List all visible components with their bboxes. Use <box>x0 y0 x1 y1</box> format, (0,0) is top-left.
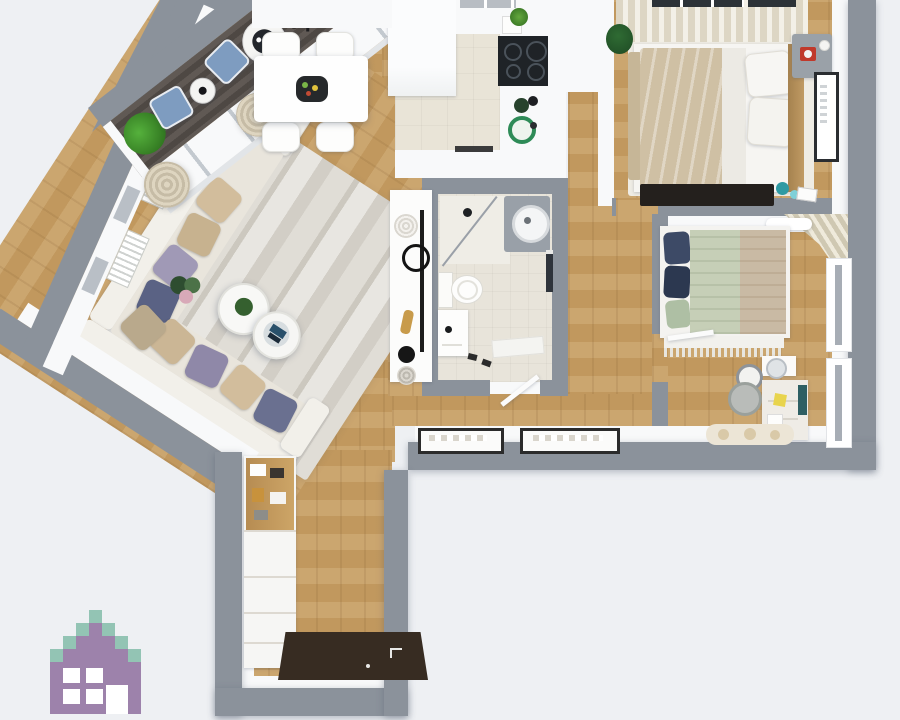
dotted-disc <box>397 366 416 385</box>
dining-chair <box>316 122 354 152</box>
bathroom-bottom-wall-right <box>540 380 568 396</box>
bedroom1-plant <box>606 24 633 54</box>
kitchen-corridor-wall-face <box>548 0 566 178</box>
toilet <box>438 270 484 308</box>
bathroom-top-wall <box>422 178 568 194</box>
kitchen-cabinet-block <box>388 0 456 96</box>
bed1-sheet <box>722 48 746 188</box>
hallway-left-wall <box>215 452 242 716</box>
entry-mat <box>278 632 428 680</box>
vanity-sink <box>438 310 468 356</box>
white-board <box>796 187 818 203</box>
teal-decor <box>776 182 789 195</box>
bedroom1-black-rug <box>640 184 774 206</box>
bed1-pillow <box>744 50 794 99</box>
bed2-pillow <box>663 231 691 265</box>
corridor-floor-horizontal <box>392 394 658 426</box>
pouf <box>394 214 418 238</box>
hallway-bottom-wall <box>215 688 408 716</box>
dining-chair <box>262 122 300 152</box>
pixel-house-logo <box>50 610 142 714</box>
black-disc <box>398 346 415 363</box>
washing-machine <box>504 196 550 252</box>
sticky-note <box>773 393 787 407</box>
bed2-blanket-sage <box>690 230 742 334</box>
bedroom2-window <box>826 258 852 352</box>
bed2-pillow <box>665 299 692 329</box>
bed2-blanket-tan <box>740 230 786 334</box>
standing-mirror <box>420 210 424 352</box>
kitchen-doormat <box>455 146 493 152</box>
bathroom-bottom-wall-left <box>422 380 490 396</box>
shelf-unit <box>246 458 294 530</box>
towel-rail <box>546 250 553 292</box>
desk-chair <box>728 382 762 416</box>
bedroom1-window <box>748 0 796 7</box>
bed2-pillow <box>663 265 691 298</box>
bedroom2-window <box>826 358 852 448</box>
floor-plan-render <box>0 0 900 720</box>
dining-top-wall <box>252 0 392 28</box>
alarm-clock <box>800 47 816 61</box>
corridor-top-closet <box>566 0 598 92</box>
cooktop <box>498 36 548 86</box>
shower-head <box>463 208 472 217</box>
wall-picture <box>814 72 839 162</box>
serving-tray <box>296 76 328 102</box>
bedroom1-window <box>652 0 744 7</box>
round-mirror <box>766 358 787 379</box>
kitchen-window <box>460 0 516 8</box>
bedroom2-rug <box>706 424 794 445</box>
kitchen-plant <box>500 8 528 34</box>
picture-frame <box>520 428 620 454</box>
bathroom-right-wall <box>552 194 568 382</box>
mirror-ring <box>402 244 430 272</box>
right-outer-wall <box>848 0 876 470</box>
kitchen-bottom-band <box>395 150 548 178</box>
laptop <box>798 385 807 415</box>
sink-dishes <box>502 96 546 142</box>
picture-frame <box>418 428 504 454</box>
